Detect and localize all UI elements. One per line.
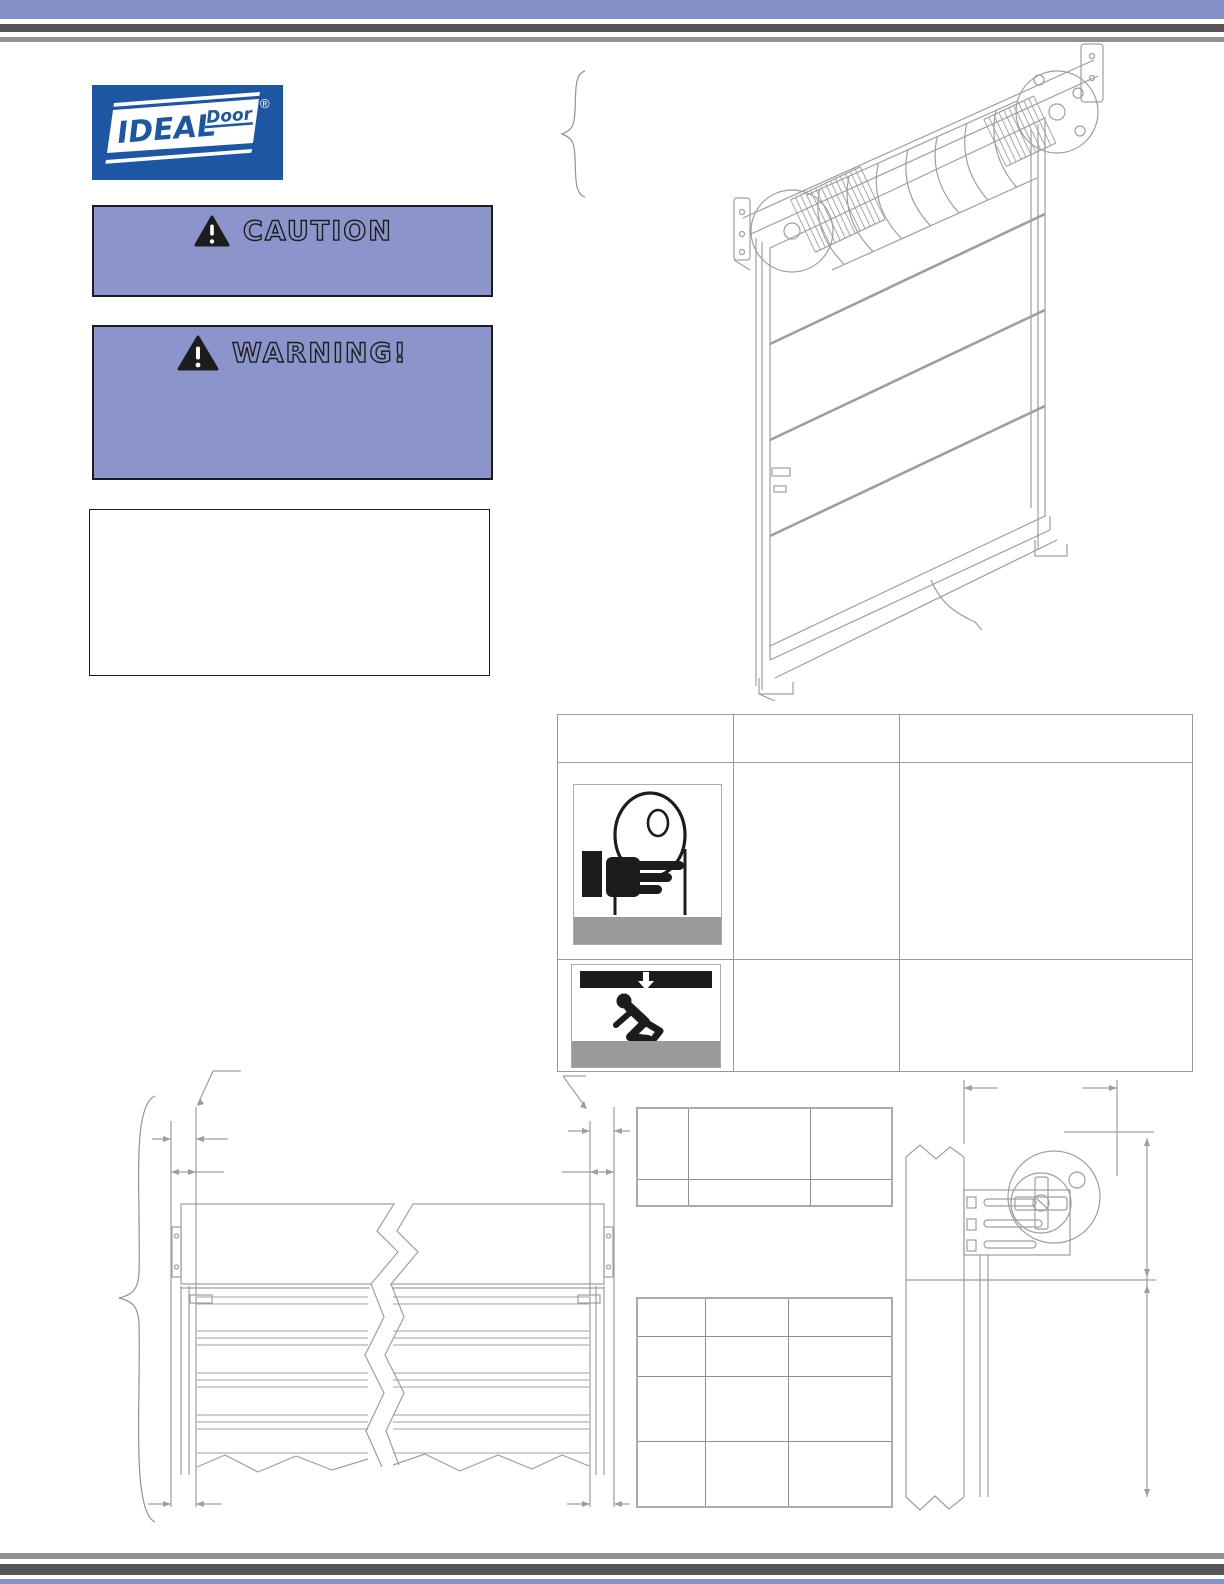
warning-title-row: WARNING! bbox=[94, 334, 491, 372]
manual-page: IDEAL Door ® CAUTION WAR bbox=[0, 0, 1224, 1584]
hazard-table-icon-cell bbox=[558, 763, 734, 960]
caution-box: CAUTION bbox=[92, 205, 493, 297]
hazard-table-cell bbox=[900, 763, 1192, 960]
table-cell bbox=[638, 1442, 706, 1506]
footer-bar-light-gray bbox=[0, 1553, 1224, 1559]
table-cell bbox=[706, 1442, 789, 1506]
footer-bar-blue bbox=[0, 1579, 1224, 1584]
table-cell bbox=[706, 1337, 789, 1377]
brace-left-icon bbox=[119, 1096, 155, 1522]
table-cell bbox=[789, 1377, 891, 1442]
table-cell bbox=[689, 1109, 811, 1180]
hazard-table-cell bbox=[734, 763, 900, 960]
spec-table-large bbox=[636, 1297, 893, 1508]
warning-box: WARNING! bbox=[92, 325, 493, 480]
table-cell bbox=[638, 1299, 706, 1337]
table-cell bbox=[789, 1442, 891, 1506]
hazard-table-cell bbox=[900, 960, 1192, 1071]
brace-left-icon bbox=[562, 71, 585, 197]
table-cell bbox=[706, 1377, 789, 1442]
door-crush-hazard-icon bbox=[571, 964, 721, 1068]
table-cell bbox=[811, 1109, 891, 1180]
table-cell bbox=[638, 1109, 689, 1180]
hazard-table-cell bbox=[734, 960, 900, 1071]
footer-bar-dark-gray bbox=[0, 1564, 1224, 1575]
caution-title-row: CAUTION bbox=[94, 212, 491, 250]
caution-title: CAUTION bbox=[241, 212, 393, 250]
table-cell bbox=[689, 1180, 811, 1205]
svg-text:CAUTION: CAUTION bbox=[243, 216, 393, 247]
table-cell bbox=[706, 1299, 789, 1337]
hazard-table-header-cell bbox=[734, 715, 900, 763]
hazard-table-header-cell bbox=[900, 715, 1192, 763]
bracket-detail-figure bbox=[890, 1060, 1170, 1530]
registered-mark-icon: ® bbox=[260, 96, 270, 111]
header-bar-blue bbox=[0, 0, 1224, 19]
spring-pinch-hazard-icon bbox=[573, 784, 722, 945]
front-elevation-figure bbox=[100, 1055, 630, 1540]
table-cell bbox=[638, 1337, 706, 1377]
icon-caption-bar bbox=[574, 917, 721, 944]
hazard-table bbox=[557, 714, 1193, 1072]
table-cell bbox=[638, 1377, 706, 1442]
table-cell bbox=[789, 1337, 891, 1377]
warning-triangle-icon bbox=[193, 214, 231, 248]
header-bar-dark-gray bbox=[0, 24, 1224, 32]
warning-title: WARNING! bbox=[230, 334, 410, 372]
table-cell bbox=[789, 1299, 891, 1337]
notice-box bbox=[89, 509, 490, 676]
warning-triangle-icon bbox=[176, 334, 220, 372]
table-cell bbox=[638, 1180, 689, 1205]
svg-text:WARNING!: WARNING! bbox=[232, 338, 408, 369]
hazard-table-header-cell bbox=[558, 715, 734, 763]
spec-table-small bbox=[636, 1107, 893, 1207]
ideal-door-logo: IDEAL Door ® bbox=[92, 85, 283, 180]
table-cell bbox=[811, 1180, 891, 1205]
door-isometric-figure bbox=[545, 38, 1224, 710]
